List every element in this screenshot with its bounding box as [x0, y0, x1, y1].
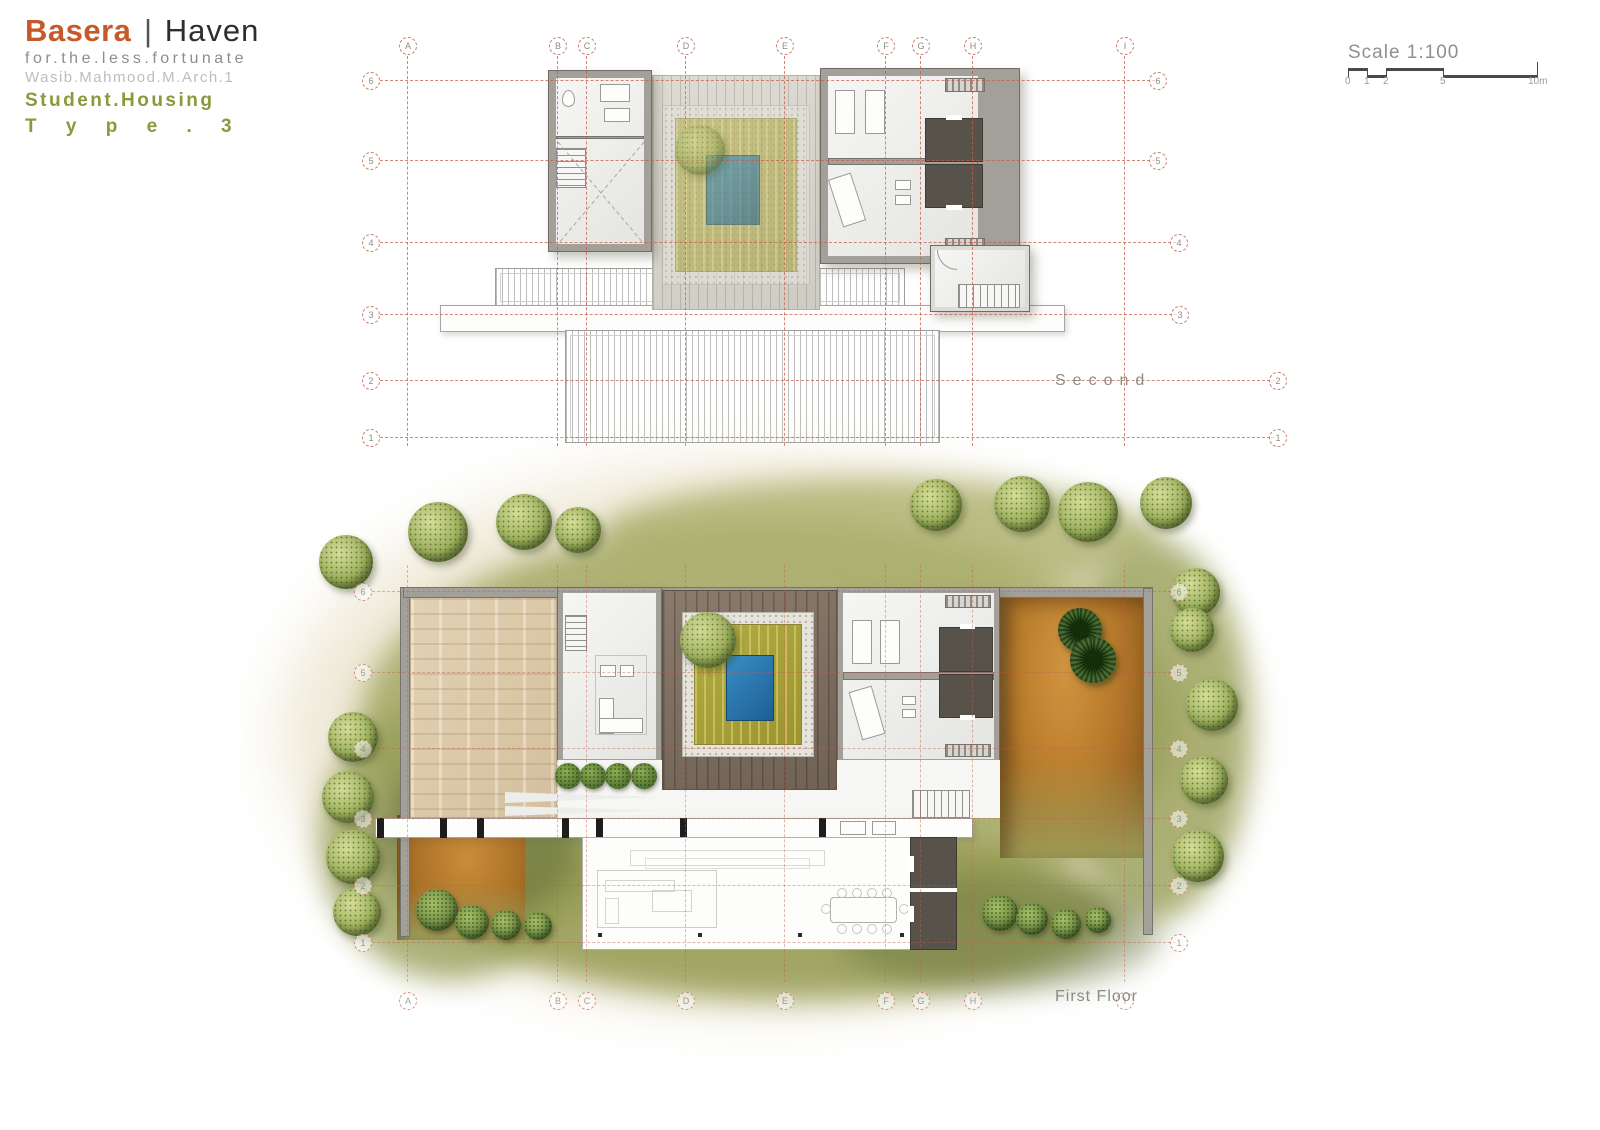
hedge-icon	[631, 763, 657, 789]
bath-counter	[600, 84, 630, 102]
grid-line-A	[407, 56, 408, 446]
grid-line-G	[920, 56, 921, 446]
bush-icon	[416, 889, 458, 931]
brand-line: Basera | Haven	[25, 14, 355, 48]
grid-label-B: B	[549, 37, 567, 55]
grid-label-5: 5	[1149, 152, 1167, 170]
grid-label-2: 2	[362, 372, 380, 390]
column	[477, 818, 484, 838]
closet	[945, 744, 991, 757]
grid-line-5	[372, 672, 1176, 673]
tree-icon	[328, 712, 378, 762]
grid-label-1: 1	[1170, 934, 1188, 952]
grid-line-F	[885, 565, 886, 982]
door-gap	[946, 115, 962, 120]
grid-line-4	[380, 242, 1176, 243]
stair-first-floor	[565, 615, 587, 651]
tree-icon	[1180, 756, 1228, 804]
side-table	[902, 709, 916, 718]
bathroom-dark	[925, 164, 983, 208]
scale-seg	[1348, 68, 1367, 71]
column	[819, 818, 826, 838]
tree-icon	[1170, 608, 1214, 652]
grid-line-C	[586, 56, 587, 446]
column	[596, 818, 603, 838]
bed	[852, 620, 872, 664]
chair	[882, 924, 892, 934]
bed	[880, 620, 900, 664]
grid-label-C: C	[578, 992, 596, 1010]
grid-label-2: 2	[354, 877, 372, 895]
scale-bar: Scale 1:100 012510m	[1348, 42, 1558, 98]
scale-tick-label: 2	[1383, 76, 1389, 87]
door-gap	[946, 205, 962, 210]
bathroom-dark	[939, 674, 993, 718]
grid-label-3: 3	[354, 810, 372, 828]
brand-name: Basera	[25, 13, 131, 48]
grid-label-G: G	[912, 992, 930, 1010]
project-name: Haven	[165, 13, 260, 48]
terrace-line	[645, 858, 810, 869]
service-divider	[910, 888, 957, 892]
timber-deck	[410, 597, 557, 818]
bathroom-dark	[925, 118, 983, 162]
bush-icon	[524, 912, 552, 940]
hedge-icon	[555, 763, 581, 789]
armchair	[600, 665, 616, 677]
title-block: Basera | Haven for.the.less.fortunate Wa…	[25, 14, 355, 138]
scale-seg	[1386, 68, 1443, 71]
tree-icon	[326, 830, 380, 884]
tree-icon	[994, 476, 1050, 532]
grid-label-D: D	[677, 992, 695, 1010]
tree-icon	[1186, 679, 1238, 731]
chair	[821, 904, 831, 914]
tree-icon	[333, 888, 381, 936]
grid-label-4: 4	[1170, 234, 1188, 252]
grid-label-4: 4	[354, 740, 372, 758]
stove-icon	[840, 821, 866, 835]
void-x-marks	[558, 142, 644, 244]
side-table	[895, 195, 911, 205]
grid-label-3: 3	[362, 306, 380, 324]
bed	[835, 90, 855, 134]
dining-table	[830, 897, 897, 923]
grid-label-5: 5	[1170, 664, 1188, 682]
bush-icon	[491, 910, 521, 940]
column	[377, 818, 384, 838]
chair	[852, 888, 862, 898]
scale-tick-label: 5	[1440, 76, 1446, 87]
courtyard-tree-upper	[675, 125, 725, 175]
grid-line-B	[557, 56, 558, 446]
east-boundary-wall	[1143, 588, 1153, 935]
armchair	[620, 665, 634, 677]
lounge-outline	[652, 890, 692, 912]
tree-icon	[1058, 482, 1118, 542]
grid-label-5: 5	[362, 152, 380, 170]
bathroom-dark	[939, 627, 993, 672]
side-table	[895, 180, 911, 190]
type-title: T y p e . 3	[25, 116, 355, 138]
grid-line-F	[885, 56, 886, 446]
grid-label-I: I	[1116, 37, 1134, 55]
tree-icon	[910, 479, 962, 531]
tree-icon	[1172, 830, 1224, 882]
courtyard-tree	[680, 612, 736, 668]
chair	[837, 924, 847, 934]
grid-line-1	[372, 942, 1176, 943]
hedge-icon	[605, 763, 631, 789]
door-gap	[908, 856, 914, 872]
grid-line-I	[1124, 565, 1125, 982]
lower-roof-hatch	[565, 330, 940, 443]
grid-label-4: 4	[362, 234, 380, 252]
palm-icon	[1070, 637, 1116, 683]
grid-line-3	[372, 818, 1176, 819]
grid-line-3	[380, 314, 1177, 315]
chair	[837, 888, 847, 898]
bath-fixture	[604, 108, 630, 122]
column	[562, 818, 569, 838]
scale-seg	[1443, 75, 1538, 78]
tree-icon	[555, 507, 601, 553]
hedge-icon	[580, 763, 606, 789]
first-plan-caption: First Floor	[1055, 988, 1138, 1006]
grid-line-6	[380, 80, 1155, 81]
sofa	[599, 718, 643, 733]
bush-icon	[1085, 907, 1111, 933]
grid-line-4	[372, 748, 1176, 749]
bush-icon	[982, 895, 1018, 931]
grid-label-6: 6	[362, 72, 380, 90]
grid-label-6: 6	[1170, 583, 1188, 601]
grid-label-A: A	[399, 37, 417, 55]
grid-label-F: F	[877, 992, 895, 1010]
grid-label-5: 5	[354, 664, 372, 682]
bed	[865, 90, 885, 134]
second-plan-caption: Second	[1055, 372, 1151, 390]
service-room-dark	[910, 837, 957, 950]
grid-line-5	[380, 160, 1155, 161]
door-gap	[908, 906, 914, 922]
grid-line-E	[784, 56, 785, 446]
first-floor-plan: First Floor ABCDEFGHI665544332211	[300, 460, 1230, 1020]
grid-line-E	[784, 565, 785, 982]
toilet-icon	[562, 90, 575, 107]
grid-label-C: C	[578, 37, 596, 55]
grid-label-D: D	[677, 37, 695, 55]
tagline: for.the.less.fortunate	[25, 50, 355, 68]
grid-label-1: 1	[362, 429, 380, 447]
column-dot	[900, 933, 904, 937]
grid-label-6: 6	[1149, 72, 1167, 90]
chair	[852, 924, 862, 934]
grid-label-3: 3	[1171, 306, 1189, 324]
column-dot	[598, 933, 602, 937]
tree-icon	[496, 494, 552, 550]
grid-label-G: G	[912, 37, 930, 55]
grid-line-H	[972, 565, 973, 982]
chair	[867, 924, 877, 934]
bush-icon	[1016, 903, 1048, 935]
grid-label-E: E	[776, 37, 794, 55]
bush-icon	[455, 905, 489, 939]
grid-line-D	[685, 56, 686, 446]
grid-line-G	[920, 565, 921, 982]
tree-icon	[408, 502, 468, 562]
grid-line-H	[972, 56, 973, 446]
presentation-sheet: Basera | Haven for.the.less.fortunate Wa…	[0, 0, 1600, 1130]
apron	[662, 790, 837, 818]
program-title: Student.Housing	[25, 90, 355, 112]
grid-label-F: F	[877, 37, 895, 55]
left-block-wall	[556, 136, 644, 139]
grid-label-3: 3	[1170, 810, 1188, 828]
tree-icon	[319, 535, 373, 589]
grid-label-H: H	[964, 992, 982, 1010]
grid-label-2: 2	[1170, 877, 1188, 895]
grid-label-E: E	[776, 992, 794, 1010]
column	[440, 818, 447, 838]
grid-label-1: 1	[1269, 429, 1287, 447]
sink-icon	[872, 821, 896, 835]
grid-label-4: 4	[1170, 740, 1188, 758]
grid-line-1	[380, 437, 1275, 438]
chair	[882, 888, 892, 898]
column-dot	[698, 933, 702, 937]
closet	[945, 595, 991, 608]
scale-tick-label: 1	[1364, 76, 1370, 87]
grid-line-A	[407, 565, 408, 982]
grid-label-6: 6	[354, 583, 372, 601]
side-table	[902, 696, 916, 705]
grid-label-B: B	[549, 992, 567, 1010]
grid-label-H: H	[964, 37, 982, 55]
chair	[867, 888, 877, 898]
column-dot	[798, 933, 802, 937]
courtyard-pool	[726, 655, 774, 721]
grid-line-2	[372, 885, 1176, 886]
grid-label-2: 2	[1269, 372, 1287, 390]
tree-icon	[1140, 477, 1192, 529]
author: Wasib.Mahmood.M.Arch.1	[25, 69, 355, 86]
bush-icon	[1051, 909, 1081, 939]
scale-tick-label: 10m	[1528, 76, 1547, 87]
scale-label: Scale 1:100	[1348, 42, 1558, 64]
second-floor-plan: Second ABCDEFGHI665544332211	[360, 30, 1350, 460]
brand-divider: |	[140, 13, 156, 48]
stair-lower	[958, 284, 1020, 308]
grid-label-1: 1	[354, 934, 372, 952]
grid-line-6	[372, 591, 1176, 592]
lounge-outline	[605, 898, 619, 924]
grid-label-A: A	[399, 992, 417, 1010]
